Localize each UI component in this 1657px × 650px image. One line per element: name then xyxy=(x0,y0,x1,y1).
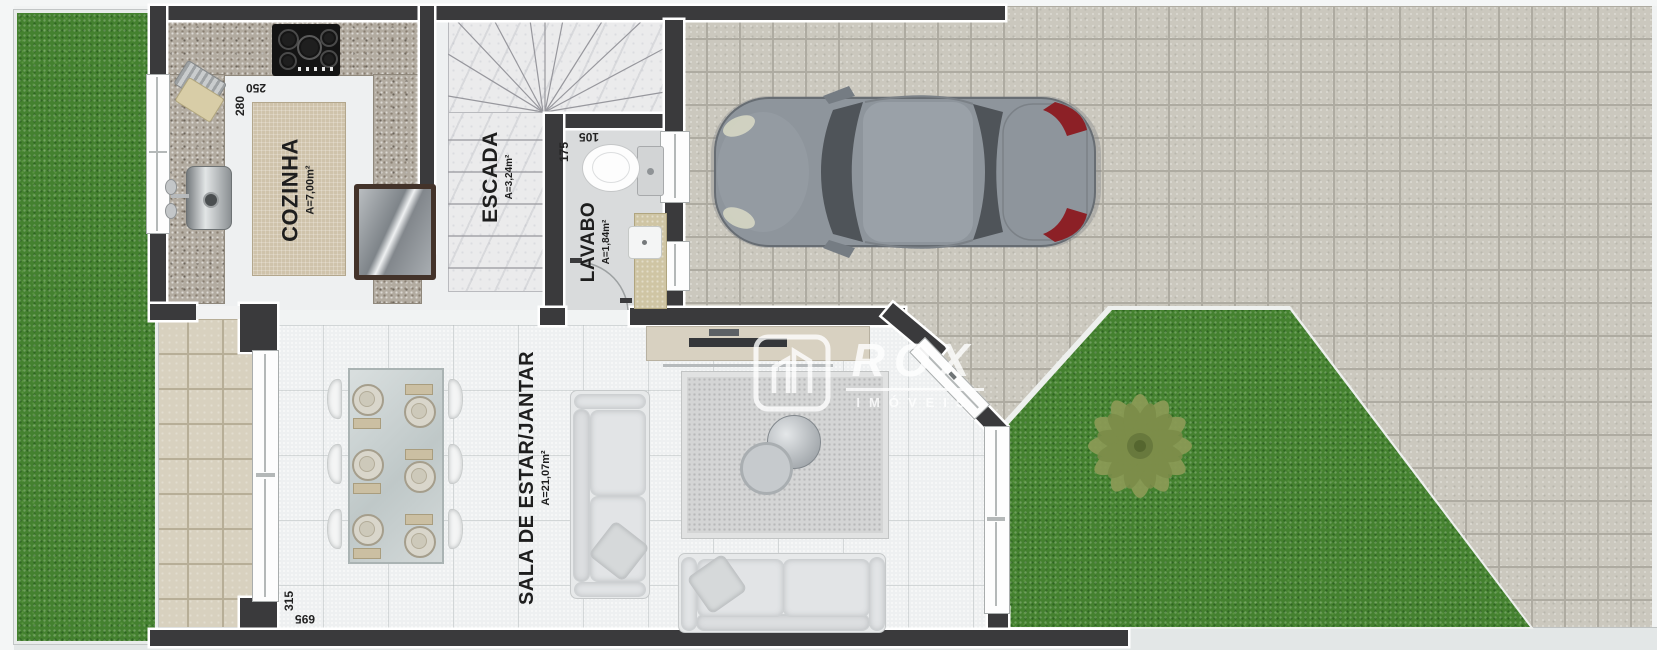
label-sala: SALA DE ESTAR/JANTAR A=21,07m² xyxy=(516,351,552,605)
sofa-horizontal xyxy=(678,553,886,633)
lavabo-window-upper xyxy=(660,131,690,203)
toilet-tank xyxy=(637,146,664,196)
dim-lavabo-depth: 175 xyxy=(557,142,571,162)
watermark: ROX IMÓVEIS xyxy=(752,328,1012,418)
left-margin xyxy=(0,0,14,650)
left-lawn xyxy=(14,10,158,644)
dining-chair xyxy=(327,379,342,419)
wall-kitchen-bottom-stub xyxy=(150,304,196,320)
sofa-vertical xyxy=(570,390,650,599)
wall-sala-top xyxy=(630,308,905,325)
wall-lavabo-top xyxy=(545,114,683,128)
label-cozinha: COZINHA A=7,00m² xyxy=(278,138,317,242)
dim-kitchen-depth: 280 xyxy=(233,96,247,116)
place-setting xyxy=(404,396,436,428)
watermark-brand: ROX xyxy=(852,337,979,383)
dim-kitchen-width: 250 xyxy=(246,81,266,95)
toilet-bowl xyxy=(582,144,640,192)
rox-logo-icon xyxy=(752,333,832,413)
place-setting xyxy=(352,384,384,416)
watermark-subtitle: IMÓVEIS xyxy=(856,395,973,410)
place-setting xyxy=(404,526,436,558)
patio-door-opening xyxy=(196,306,240,319)
cooktop xyxy=(272,24,340,76)
kitchen-sink xyxy=(186,166,232,230)
dining-chair xyxy=(327,444,342,484)
label-lavabo: LAVABO A=1,84m² xyxy=(578,202,612,282)
wall-top xyxy=(150,6,1005,20)
coffee-table-small xyxy=(740,442,793,495)
napkin xyxy=(405,384,433,395)
side-patio-tiles xyxy=(152,318,258,628)
napkin xyxy=(353,548,381,559)
place-setting xyxy=(404,461,436,493)
dim-sala-length: 695 xyxy=(295,612,315,626)
wall-sala-left-lower-stub xyxy=(240,598,277,632)
sala-left-sliding-door xyxy=(252,350,279,602)
napkin xyxy=(353,483,381,494)
dining-chair xyxy=(327,509,342,549)
floor-plan: ROX IMÓVEIS COZINHA A=7,00m² ESCADA A=3,… xyxy=(0,0,1657,650)
napkin xyxy=(405,449,433,460)
refrigerator xyxy=(354,184,436,280)
wall-left-upper xyxy=(150,6,166,80)
car-top-view xyxy=(705,82,1105,262)
watermark-divider xyxy=(846,388,984,391)
label-escada: ESCADA A=3,24m² xyxy=(479,131,515,223)
place-setting xyxy=(352,449,384,481)
dim-lavabo-width: 105 xyxy=(579,130,599,144)
lavabo-basin xyxy=(628,226,662,259)
napkin xyxy=(405,514,433,525)
place-setting xyxy=(352,514,384,546)
tree-icon xyxy=(1062,368,1218,524)
dim-sala-width: 315 xyxy=(282,591,296,611)
wall-bottom xyxy=(150,630,1128,646)
wall-sala-left-upper-stub xyxy=(240,304,277,352)
napkin xyxy=(353,418,381,429)
sala-right-sliding-door xyxy=(984,426,1010,614)
